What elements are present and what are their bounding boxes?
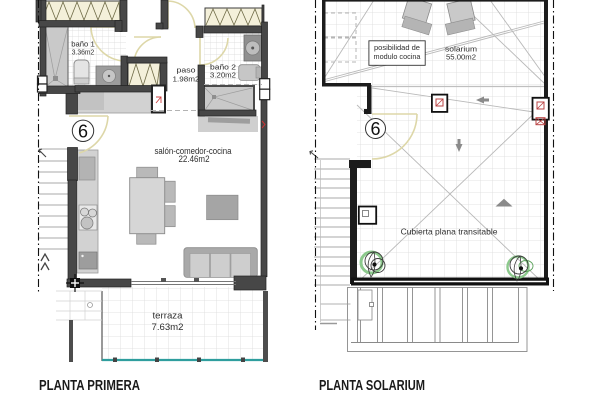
svg-text:55.00m2: 55.00m2 [446, 53, 476, 62]
svg-text:posibilidad de: posibilidad de [374, 43, 420, 52]
svg-text:6: 6 [370, 119, 380, 139]
svg-text:6: 6 [78, 121, 88, 141]
svg-text:modulo cocina: modulo cocina [374, 52, 422, 61]
svg-text:Cubierta plana transitable: Cubierta plana transitable [401, 227, 498, 237]
svg-text:22.46m2: 22.46m2 [179, 154, 210, 164]
svg-text:3.20m2: 3.20m2 [210, 71, 236, 80]
svg-text:7.63m2: 7.63m2 [152, 322, 184, 333]
svg-text:terraza: terraza [153, 311, 184, 322]
svg-text:PLANTA SOLARIUM: PLANTA SOLARIUM [319, 378, 425, 394]
svg-text:PLANTA PRIMERA: PLANTA PRIMERA [39, 378, 140, 394]
svg-text:3.36m2: 3.36m2 [72, 48, 95, 57]
svg-text:paso: paso [177, 66, 196, 75]
svg-text:1.98m2: 1.98m2 [173, 75, 200, 84]
